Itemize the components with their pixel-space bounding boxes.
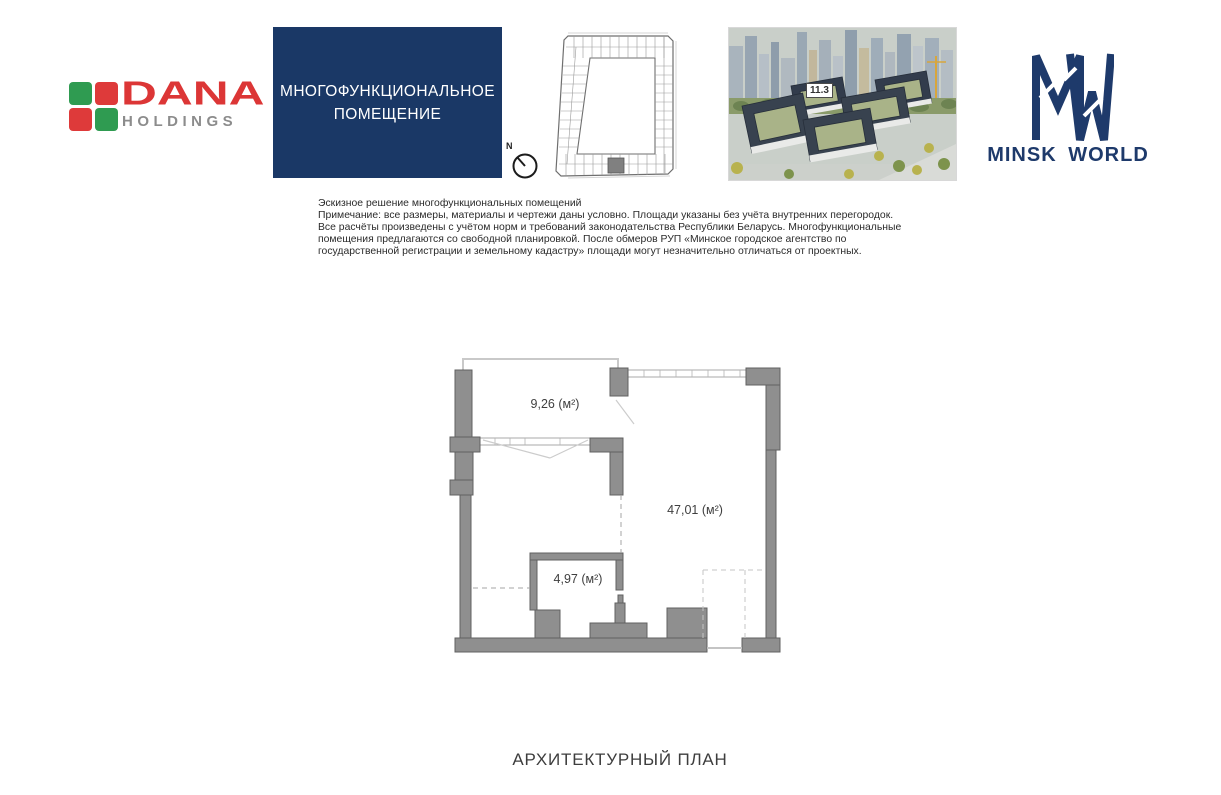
dana-logo-name: DANA	[121, 74, 265, 113]
floor-plan	[440, 340, 800, 660]
disclaimer-line: помещения предлагаются со свободной план…	[318, 234, 901, 246]
disclaimer-line: государственной регистрации и земельному…	[318, 246, 901, 258]
unit-type-title-box: МНОГОФУНКЦИОНАЛЬНОЕ ПОМЕЩЕНИЕ	[273, 27, 502, 178]
compass-icon	[508, 148, 544, 184]
disclaimer-line: Все расчёты произведены с учётом норм и …	[318, 222, 901, 234]
room-area-main: 47,01 (м²)	[640, 503, 750, 517]
highlighted-unit	[608, 158, 624, 173]
dana-holdings-logo: DANA HOLDINGS	[65, 76, 265, 138]
dana-logo-squares-icon	[69, 82, 118, 131]
square-red-bl	[69, 108, 92, 131]
disclaimer-line: Примечание: все размеры, материалы и чер…	[318, 210, 901, 222]
square-green-br	[95, 108, 118, 131]
disclaimer-line: Эскизное решение многофункциональных пом…	[318, 198, 901, 210]
sheet-title: АРХИТЕКТУРНЫЙ ПЛАН	[440, 750, 800, 770]
dana-logo-subtitle: HOLDINGS	[122, 113, 237, 130]
building-number-badge: 11.3	[806, 83, 833, 98]
unit-type-line1: МНОГОФУНКЦИОНАЛЬНОЕ	[280, 80, 495, 103]
building-footprint-plan	[552, 30, 686, 180]
minsk-world-wordmark: MINSK WORLD	[968, 144, 1168, 167]
disclaimer-text: Эскизное решение многофункциональных пом…	[318, 198, 901, 258]
square-red-tr	[95, 82, 118, 105]
aerial-render	[728, 27, 957, 181]
minsk-world-monogram-icon	[1028, 50, 1114, 142]
plan-sheet: DANA HOLDINGS МНОГОФУНКЦИОНАЛЬНОЕ ПОМЕЩЕ…	[0, 0, 1221, 795]
square-green-tl	[69, 82, 92, 105]
room-area-storage: 4,97 (м²)	[523, 572, 633, 586]
unit-type-line2: ПОМЕЩЕНИЕ	[334, 103, 442, 126]
room-area-balcony: 9,26 (м²)	[500, 397, 610, 411]
